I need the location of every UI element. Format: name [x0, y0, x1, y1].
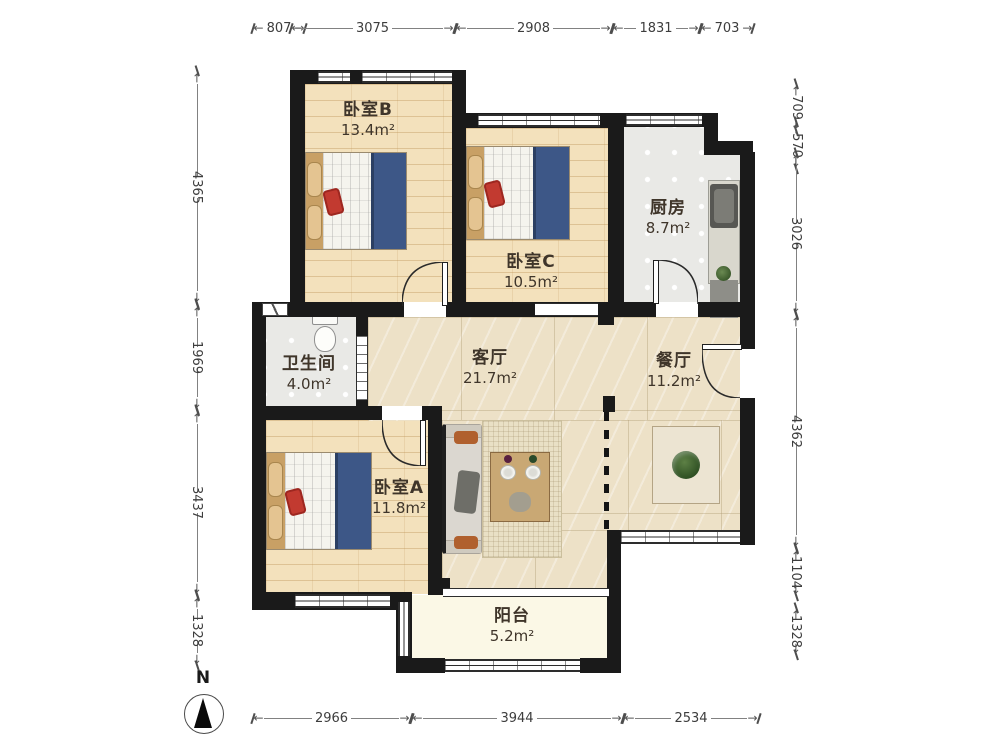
wall-segment	[580, 658, 621, 673]
window-icon	[295, 594, 390, 608]
table-cloth-icon	[509, 492, 531, 512]
compass-needle-icon	[194, 698, 212, 728]
room-name: 厨房	[646, 198, 690, 219]
dimension-top-1: ←807→	[252, 20, 290, 36]
dimension-top-4: ←1831→	[612, 20, 700, 36]
dimension-left-3: ←3437→	[189, 410, 205, 595]
dining-boundary-dashed-line	[604, 412, 609, 530]
wall-segment	[608, 113, 624, 317]
wall-segment	[290, 70, 305, 317]
room-name: 卫生间	[282, 354, 336, 375]
dimension-value: 3437	[187, 486, 208, 519]
dimension-top-2: ←3075→	[290, 20, 455, 36]
dimension-value: 4365	[187, 170, 208, 203]
dimension-right-6: ←1328→	[788, 607, 804, 678]
entry-door-leaf	[702, 344, 742, 350]
dimension-value: 1328	[187, 614, 208, 647]
kitchen-plant-icon	[716, 266, 731, 281]
bed-sheet	[323, 153, 371, 249]
red-cloth-icon	[284, 487, 307, 516]
bed-blanket	[533, 147, 569, 239]
window-icon	[318, 71, 350, 83]
dimension-bottom-3: ←2534→	[623, 710, 759, 726]
wall-segment	[410, 658, 445, 673]
kitchen-door-gap	[656, 302, 698, 317]
room-area: 5.2m²	[490, 627, 534, 646]
dimension-top-5: ←703→	[700, 20, 738, 36]
plate-icon	[525, 465, 541, 480]
wall-segment	[607, 530, 621, 673]
red-cloth-icon	[483, 179, 506, 208]
plate-icon	[500, 465, 516, 480]
sofa-pillow-icon	[454, 536, 478, 549]
room-name: 卧室C	[504, 252, 558, 273]
dimension-value: 1831	[636, 21, 675, 36]
sink-icon	[710, 184, 738, 228]
bed-icon	[266, 452, 372, 550]
wall-segment	[452, 70, 466, 317]
bedroom-b-door-arc	[402, 262, 446, 306]
window-icon	[478, 114, 600, 127]
bed-pillows	[467, 147, 484, 239]
bottle-icon	[504, 455, 512, 463]
bed-sheet	[285, 453, 335, 549]
balcony-sliding-door	[443, 588, 609, 597]
wall-segment	[356, 406, 384, 420]
window-icon	[621, 530, 740, 544]
wall-segment	[252, 406, 266, 610]
dimension-left-4: ←1328→	[189, 595, 205, 666]
floor-plan-canvas: 卧室B 13.4m² 卧室C 10.5m² 厨房 8.7m² 卫生间 4.0m²…	[0, 0, 1000, 750]
room-name: 卧室B	[341, 100, 395, 121]
room-area: 10.5m²	[504, 273, 558, 292]
room-area: 11.8m²	[372, 499, 426, 518]
dimension-value: 1969	[187, 340, 208, 373]
room-label-bedroom-c: 卧室C 10.5m²	[504, 252, 558, 292]
room-label-bedroom-b: 卧室B 13.4m²	[341, 100, 395, 140]
dimension-right-3: ←3026→	[788, 152, 804, 314]
dimension-value: 709	[786, 95, 807, 120]
dimension-left-1: ←4365→	[189, 70, 205, 304]
window-icon	[362, 71, 452, 83]
dimension-value: 4362	[786, 414, 807, 447]
dimension-value: 703	[712, 21, 743, 36]
room-label-bedroom-a: 卧室A 11.8m²	[372, 478, 426, 518]
dimension-top-3: ←2908→	[455, 20, 612, 36]
dimension-bottom-1: ←2966→	[252, 710, 411, 726]
wall-segment	[428, 420, 442, 595]
bathroom-sliding-door	[356, 336, 368, 400]
red-cloth-icon	[322, 187, 345, 216]
dimension-bottom-2: ←3944→	[411, 710, 623, 726]
compass-north-label: N	[196, 668, 210, 688]
kitchen-door-arc	[656, 260, 698, 304]
wall-segment	[740, 398, 755, 545]
toilet-bowl-icon	[314, 326, 336, 352]
room-area: 4.0m²	[282, 375, 336, 394]
wall-segment	[252, 302, 266, 420]
bed-icon	[305, 152, 407, 250]
room-label-kitchen: 厨房 8.7m²	[646, 198, 690, 238]
room-name: 阳台	[490, 606, 534, 627]
bed-icon	[466, 146, 570, 240]
dimension-right-5: ←1104→	[788, 548, 804, 607]
bedroom-a-door-leaf	[420, 420, 426, 466]
wall-segment	[420, 406, 442, 420]
bed-blanket	[335, 453, 371, 549]
sofa-icon	[442, 424, 482, 554]
room-area: 13.4m²	[341, 121, 395, 140]
kitchen-door-leaf	[653, 260, 659, 304]
kitchen-notch-patch	[718, 127, 740, 142]
dimension-value: 2966	[312, 711, 351, 726]
window-icon	[445, 659, 580, 672]
room-name: 餐厅	[647, 351, 701, 372]
sofa-pillow-icon	[454, 431, 478, 444]
entry-door-gap	[740, 349, 755, 398]
bottle-icon	[529, 455, 537, 463]
dimension-right-4: ←4362→	[788, 314, 804, 548]
dimension-value: 2908	[514, 21, 553, 36]
dimension-value: 3026	[786, 216, 807, 249]
dimension-left-2: ←1969→	[189, 304, 205, 410]
room-label-bathroom: 卫生间 4.0m²	[282, 354, 336, 394]
bed-pillows	[306, 153, 323, 249]
dimension-value: 3944	[497, 711, 536, 726]
dimension-right-2: ←570→	[788, 121, 804, 152]
wall-segment	[603, 396, 615, 412]
bedroom-c-opening	[535, 303, 598, 316]
bathroom-window-icon	[262, 303, 288, 316]
window-icon	[398, 602, 410, 656]
bed-pillows	[267, 453, 285, 549]
bed-sheet	[484, 147, 533, 239]
wall-segment	[740, 152, 755, 349]
dimension-value: 2534	[671, 711, 710, 726]
room-area: 21.7m²	[463, 369, 517, 388]
room-label-dining-room: 餐厅 11.2m²	[647, 351, 701, 391]
window-icon	[626, 114, 702, 126]
bedroom-a-door-gap	[382, 406, 422, 420]
dimension-right-1: ←709→	[788, 83, 804, 121]
dining-plant-icon	[672, 451, 700, 479]
bed-blanket	[371, 153, 406, 249]
bedroom-b-door-leaf	[442, 262, 448, 306]
entry-door-arc	[702, 349, 740, 398]
room-name: 卧室A	[372, 478, 426, 499]
room-label-living-room: 客厅 21.7m²	[463, 348, 517, 388]
room-area: 11.2m²	[647, 372, 701, 391]
dimension-value: 3075	[353, 21, 392, 36]
bedroom-a-door-arc	[382, 420, 424, 466]
sofa-throw-blanket	[454, 470, 481, 514]
room-label-balcony: 阳台 5.2m²	[490, 606, 534, 646]
room-area: 8.7m²	[646, 219, 690, 238]
room-name: 客厅	[463, 348, 517, 369]
wall-segment	[598, 317, 614, 325]
wall-segment	[252, 406, 368, 420]
